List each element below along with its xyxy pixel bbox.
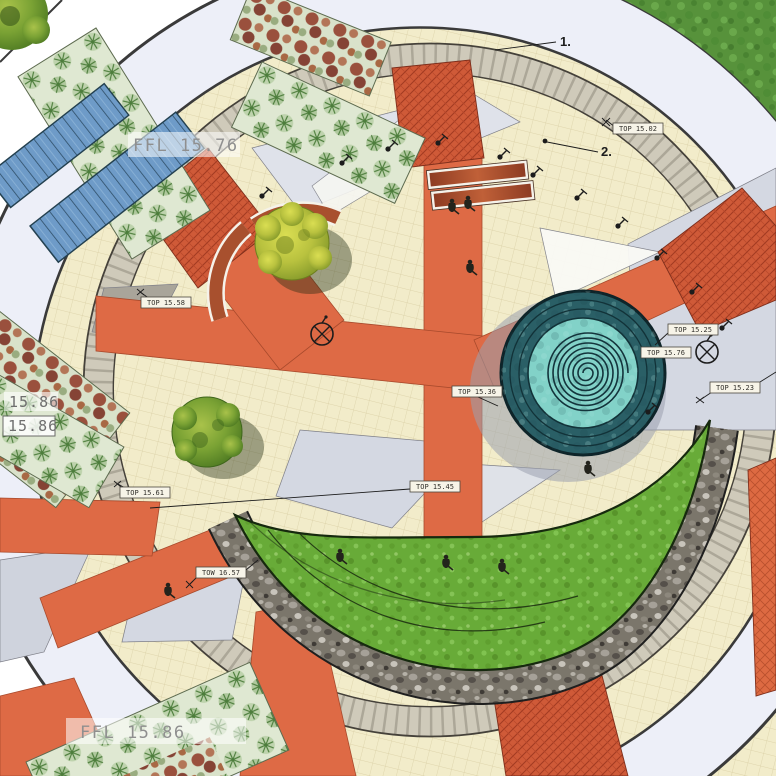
spot-level-boxed: 15.86 xyxy=(3,416,58,436)
keynote-2: 2. xyxy=(601,144,612,159)
masterplan-svg: 1. 2. TOP 15.02 TOP 15.58 TOP 15.25 TOP … xyxy=(0,0,776,776)
level-tag: TOP 15.25 xyxy=(674,326,712,334)
spot-level-plain: 15.86 xyxy=(4,392,59,411)
level-tag: TOP 15.61 xyxy=(126,489,164,497)
svg-text:FFL 15.76: FFL 15.76 xyxy=(133,136,239,156)
svg-text:FFL 15.86: FFL 15.86 xyxy=(80,723,186,743)
level-tag: TOP 15.36 xyxy=(458,388,496,396)
level-tag: TOP 15.23 xyxy=(716,384,754,392)
keynote-1: 1. xyxy=(560,34,571,49)
level-tag: TOP 15.58 xyxy=(147,299,185,307)
level-tag: TOW 16.57 xyxy=(202,569,240,577)
masterplan-canvas: 1. 2. TOP 15.02 TOP 15.58 TOP 15.25 TOP … xyxy=(0,0,776,776)
svg-text:15.86: 15.86 xyxy=(9,393,59,411)
ffl-label-lower: FFL 15.86 xyxy=(66,718,246,744)
svg-text:15.86: 15.86 xyxy=(8,417,58,435)
level-tag: TOP 15.76 xyxy=(647,349,685,357)
ffl-label-upper: FFL 15.76 xyxy=(128,132,240,157)
level-tag: TOP 15.45 xyxy=(416,483,454,491)
level-tag: TOP 15.02 xyxy=(619,125,657,133)
